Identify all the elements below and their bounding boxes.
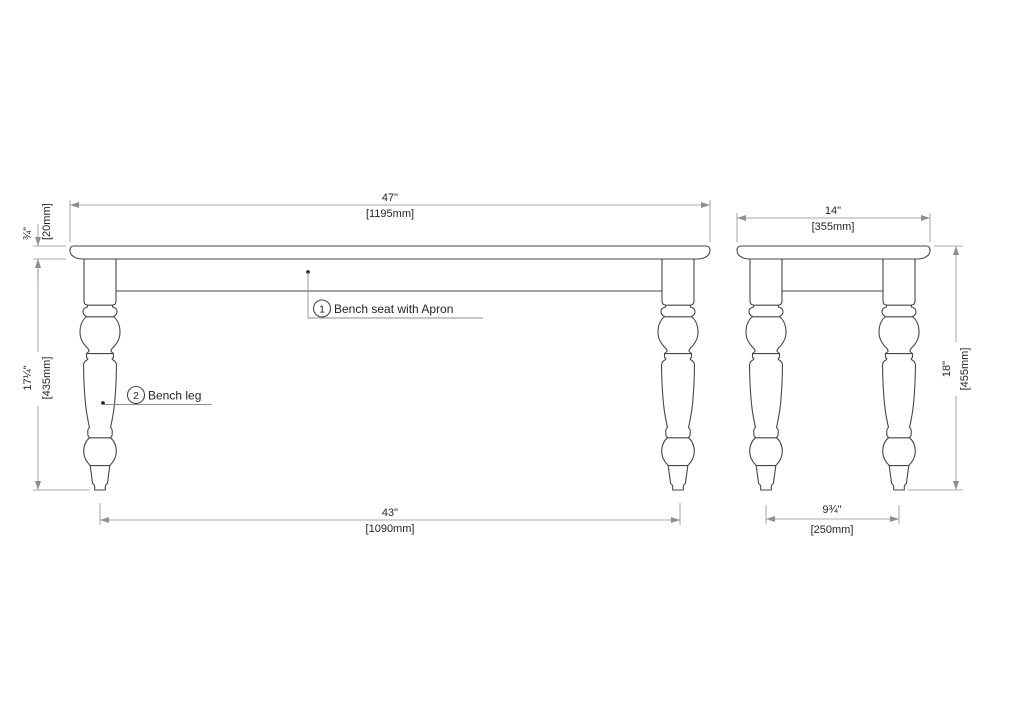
callout-bench-leg: 2 Bench leg [101,387,212,405]
callout-2-label: Bench leg [148,389,201,403]
drawing-canvas: 47" [1195mm] ¾" [20mm] 17¼" [435mm] 43" … [0,0,1024,724]
dim-front-width-mm: [1195mm] [366,208,414,220]
callout-2-number: 2 [133,390,139,402]
dim-front-leg-span-mm: [1090mm] [366,523,415,535]
bench-top-front [70,246,710,259]
side-view [737,246,930,490]
bench-leg-front-right [658,259,698,490]
dim-top-thickness-inches: ¾" [22,227,34,240]
dim-overall-height-inches: 18" [941,361,953,377]
dim-overall-height: 18" [455mm] [908,246,971,490]
front-view [70,246,710,490]
dim-side-depth: 14" [355mm] [737,205,930,242]
dim-side-depth-mm: [355mm] [812,221,855,233]
dim-front-leg-span: 43" [1090mm] [100,503,680,535]
dim-side-leg-span-mm: [250mm] [811,524,854,536]
dim-side-depth-inches: 14" [825,205,841,217]
dim-front-width-inches: 47" [382,192,398,204]
bench-leg-front-left [80,259,120,490]
dim-side-leg-span: 9¾" [250mm] [766,504,899,536]
dim-front-leg-span-inches: 43" [382,507,398,519]
callout-1-label: Bench seat with Apron [334,302,453,316]
callout-bench-seat: 1 Bench seat with Apron [306,270,483,318]
dim-top-thickness-mm: [20mm] [41,203,53,240]
bench-technical-drawing: 47" [1195mm] ¾" [20mm] 17¼" [435mm] 43" … [0,0,1024,724]
bench-leg-side-right [879,259,919,490]
callout-1-number: 1 [319,304,325,316]
bench-leg-side-left [746,259,786,490]
dim-front-width: 47" [1195mm] [70,192,710,242]
dim-top-thickness: ¾" [20mm] [22,203,66,281]
dim-side-leg-span-inches: 9¾" [822,504,841,516]
dim-leg-height-inches: 17¼" [22,365,34,390]
dim-leg-height-mm: [435mm] [41,357,53,400]
bench-top-side [737,246,930,259]
dim-leg-height: 17¼" [435mm] [22,259,90,490]
dim-overall-height-mm: [455mm] [959,348,971,391]
